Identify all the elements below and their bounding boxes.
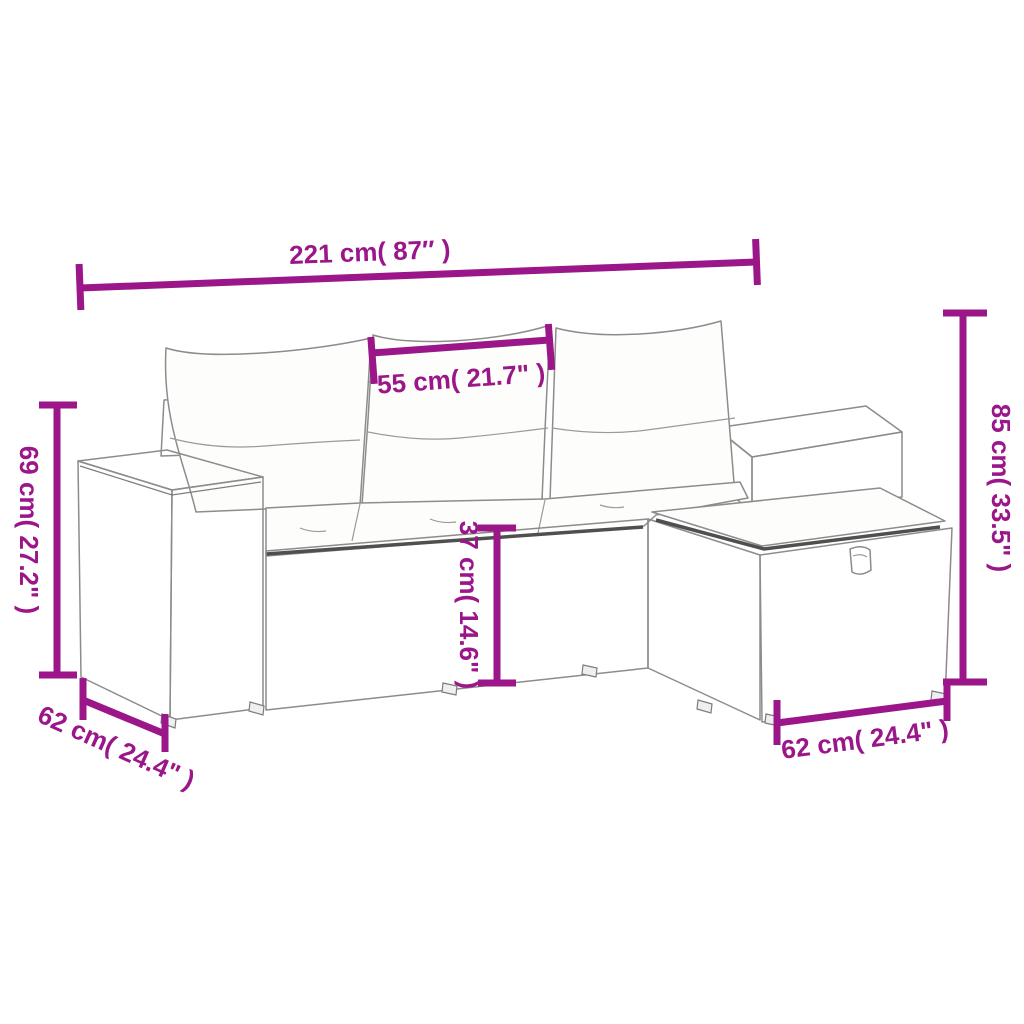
dim-armrest-depth: 62 cm( 24.4" ): [33, 678, 199, 795]
sofa-dimension-diagram: 221 cm( 87″ ) 55 cm( 21.7" ) 69 cm( 27.2…: [0, 0, 1024, 1024]
diagram-canvas: 221 cm( 87″ ) 55 cm( 21.7" ) 69 cm( 27.2…: [0, 0, 1024, 1024]
dim-overall-width-label: 221 cm( 87″ ): [289, 234, 451, 270]
dim-back-height: 85 cm( 33.5" ): [943, 313, 1016, 682]
back-cushion-right: [550, 321, 735, 500]
dim-tick: [756, 239, 758, 285]
ottoman-handle-detail: [853, 555, 867, 557]
dim-ottoman-width: 62 cm( 24.4" ): [777, 681, 950, 765]
dim-overall-width-line: [80, 262, 757, 288]
dim-armrest-height-label: 69 cm( 27.2" ): [14, 446, 44, 614]
ottoman-handle: [850, 547, 871, 574]
dim-seat-height: 37 cm( 14.6" ): [454, 521, 516, 689]
dim-tick: [548, 324, 551, 370]
dim-overall-width: 221 cm( 87″ ): [78, 222, 757, 311]
left-armrest-front: [78, 461, 172, 720]
ottoman: [648, 488, 952, 722]
right-armrest-top: [716, 406, 902, 457]
dim-tick: [371, 337, 374, 384]
foot: [249, 702, 264, 715]
dim-armrest-height: 69 cm( 27.2" ): [14, 405, 77, 675]
ottoman-left-side: [648, 519, 760, 720]
dim-tick: [79, 264, 81, 310]
left-armrest-side: [170, 477, 263, 720]
ottoman-front: [760, 528, 952, 722]
foot: [697, 700, 712, 713]
dim-back-height-label: 85 cm( 33.5" ): [986, 404, 1016, 572]
dim-seat-height-label: 37 cm( 14.6" ): [454, 521, 484, 689]
